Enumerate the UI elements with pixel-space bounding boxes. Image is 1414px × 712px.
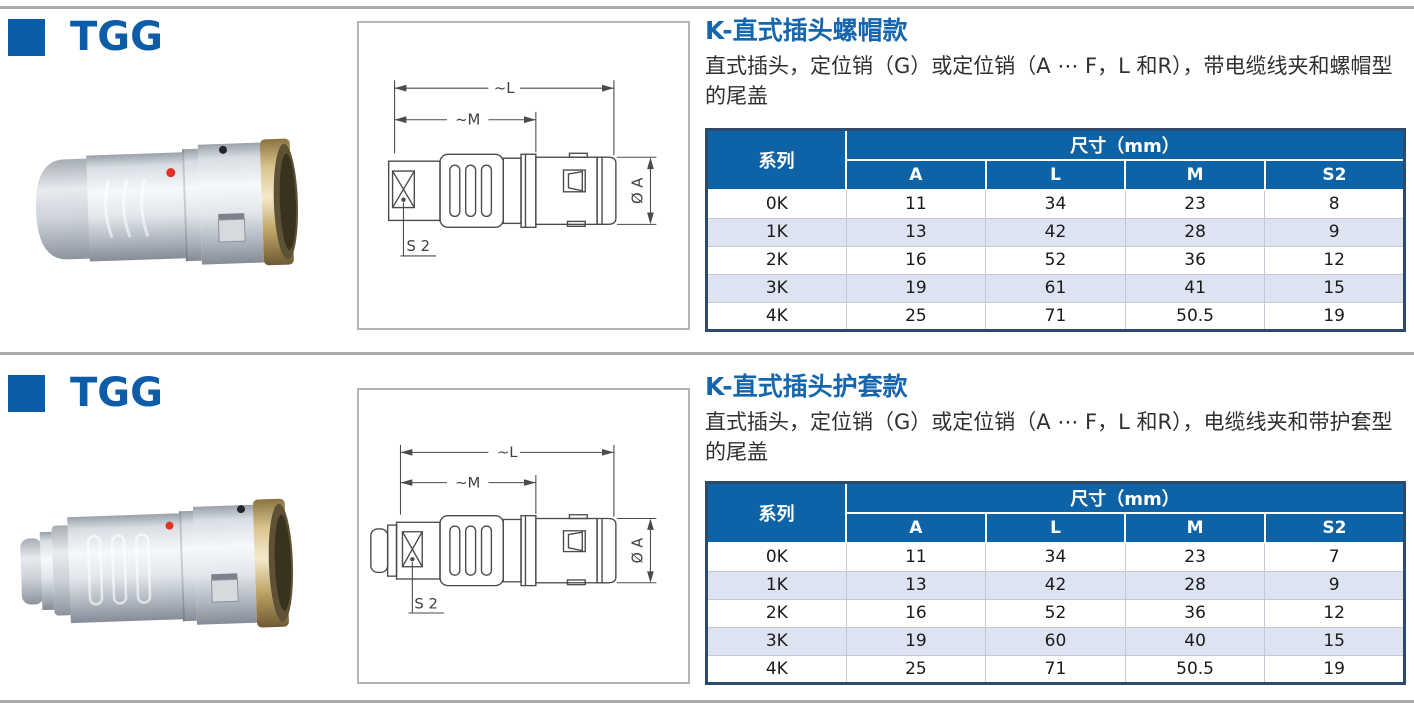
- table-cell: 7: [1265, 543, 1405, 571]
- series-brand: TGG: [8, 373, 163, 413]
- table-cell-series: 4K: [707, 655, 847, 683]
- table-row: 4K 25 71 50.5 19: [707, 655, 1405, 683]
- section-description: 直式插头，定位销（G）或定位销（A ⋯ F，L 和R），带电缆线夹和螺帽型的尾盖: [705, 51, 1407, 111]
- table-cell: 42: [986, 218, 1126, 246]
- table-cell: 34: [986, 190, 1126, 218]
- dim-label-length: ~L: [497, 445, 518, 461]
- table-cell: 71: [986, 655, 1126, 683]
- table-cell: 23: [1125, 543, 1265, 571]
- table-header-col-s2: S2: [1265, 160, 1405, 190]
- table-cell: 23: [1125, 190, 1265, 218]
- dim-label-diameter: Ø A: [630, 178, 647, 204]
- table-row: 3K 19 60 40 15: [707, 627, 1405, 655]
- table-cell-series: 3K: [707, 627, 847, 655]
- brand-square-icon: [8, 19, 45, 56]
- table-cell: 19: [846, 627, 986, 655]
- brand-square-icon: [8, 375, 45, 412]
- table-cell: 16: [846, 599, 986, 627]
- table-cell: 19: [1265, 655, 1405, 683]
- table-header-col-l: L: [986, 160, 1126, 190]
- table-cell: 12: [1265, 246, 1405, 274]
- table-row: 2K 16 52 36 12: [707, 599, 1405, 627]
- technical-drawing-nut: ~L ~M: [357, 21, 690, 330]
- series-name: TGG: [70, 17, 163, 57]
- table-row: 1K 13 42 28 9: [707, 571, 1405, 599]
- table-cell-series: 2K: [707, 246, 847, 274]
- table-header-col-m: M: [1125, 513, 1265, 543]
- table-header-series: 系列: [707, 130, 847, 191]
- table-row: 1K 13 42 28 9: [707, 218, 1405, 246]
- table-cell: 36: [1125, 599, 1265, 627]
- table-cell-series: 2K: [707, 599, 847, 627]
- table-cell: 19: [1265, 302, 1405, 330]
- bottom-divider: [0, 700, 1414, 703]
- table-cell: 50.5: [1125, 655, 1265, 683]
- table-cell: 9: [1265, 218, 1405, 246]
- table-cell-series: 4K: [707, 302, 847, 330]
- table-cell-series: 1K: [707, 218, 847, 246]
- table-header-dimensions: 尺寸（mm）: [846, 130, 1404, 161]
- table-header-col-a: A: [846, 513, 986, 543]
- table-cell-series: 1K: [707, 571, 847, 599]
- section-title: K-直式插头螺帽款: [705, 16, 1407, 46]
- dimensions-table: 系列 尺寸（mm） A L M S2 0K 11 34 23 7 1K 13 4…: [705, 481, 1406, 685]
- section-divider: [0, 352, 1414, 355]
- table-cell: 28: [1125, 218, 1265, 246]
- table-cell: 71: [986, 302, 1126, 330]
- connector-photo-nut: [22, 126, 302, 291]
- table-cell: 36: [1125, 246, 1265, 274]
- table-cell: 9: [1265, 571, 1405, 599]
- table-cell: 11: [846, 543, 986, 571]
- table-header-col-s2: S2: [1265, 513, 1405, 543]
- table-header-col-a: A: [846, 160, 986, 190]
- series-name: TGG: [70, 373, 163, 413]
- table-cell-series: 3K: [707, 274, 847, 302]
- table-cell: 40: [1125, 627, 1265, 655]
- catalog-page: TGG: [0, 0, 1414, 712]
- table-cell: 16: [846, 246, 986, 274]
- table-cell: 15: [1265, 274, 1405, 302]
- table-cell: 13: [846, 571, 986, 599]
- table-row: 4K 25 71 50.5 19: [707, 302, 1405, 330]
- table-row: 0K 11 34 23 7: [707, 543, 1405, 571]
- table-cell: 61: [986, 274, 1126, 302]
- table-cell: 60: [986, 627, 1126, 655]
- table-row: 2K 16 52 36 12: [707, 246, 1405, 274]
- table-cell-series: 0K: [707, 190, 847, 218]
- table-header-col-m: M: [1125, 160, 1265, 190]
- table-cell: 12: [1265, 599, 1405, 627]
- dim-label-mid-length: ~M: [455, 476, 480, 492]
- table-header-col-l: L: [986, 513, 1126, 543]
- table-cell: 25: [846, 655, 986, 683]
- dim-label-wrench: S 2: [414, 597, 438, 613]
- table-cell: 34: [986, 543, 1126, 571]
- section-info: K-直式插头护套款 直式插头，定位销（G）或定位销（A ⋯ F，L 和R），电缆…: [705, 372, 1407, 467]
- table-cell-series: 0K: [707, 543, 847, 571]
- table-cell: 15: [1265, 627, 1405, 655]
- table-row: 3K 19 61 41 15: [707, 274, 1405, 302]
- dim-label-mid-length: ~M: [455, 112, 480, 129]
- section-description: 直式插头，定位销（G）或定位销（A ⋯ F，L 和R），电缆线夹和带护套型的尾盖: [705, 407, 1407, 467]
- table-cell: 42: [986, 571, 1126, 599]
- table-header-dimensions: 尺寸（mm）: [846, 483, 1404, 514]
- section-info: K-直式插头螺帽款 直式插头，定位销（G）或定位销（A ⋯ F，L 和R），带电…: [705, 16, 1407, 111]
- dim-label-wrench: S 2: [407, 238, 431, 255]
- table-cell: 52: [986, 599, 1126, 627]
- table-cell: 41: [1125, 274, 1265, 302]
- table-cell: 52: [986, 246, 1126, 274]
- table-cell: 28: [1125, 571, 1265, 599]
- dim-label-diameter: Ø A: [630, 538, 646, 563]
- top-divider: [0, 6, 1414, 9]
- table-cell: 13: [846, 218, 986, 246]
- dim-label-length: ~L: [494, 80, 515, 97]
- dimensions-table: 系列 尺寸（mm） A L M S2 0K 11 34 23 8 1K 13 4…: [705, 128, 1406, 332]
- technical-drawing-sheath: ~L ~M: [357, 388, 690, 684]
- table-cell: 8: [1265, 190, 1405, 218]
- series-brand: TGG: [8, 17, 163, 57]
- table-cell: 25: [846, 302, 986, 330]
- table-header-series: 系列: [707, 483, 847, 544]
- table-cell: 50.5: [1125, 302, 1265, 330]
- section-title: K-直式插头护套款: [705, 372, 1407, 402]
- connector-photo-sheath: [14, 488, 306, 648]
- table-cell: 11: [846, 190, 986, 218]
- table-cell: 19: [846, 274, 986, 302]
- table-row: 0K 11 34 23 8: [707, 190, 1405, 218]
